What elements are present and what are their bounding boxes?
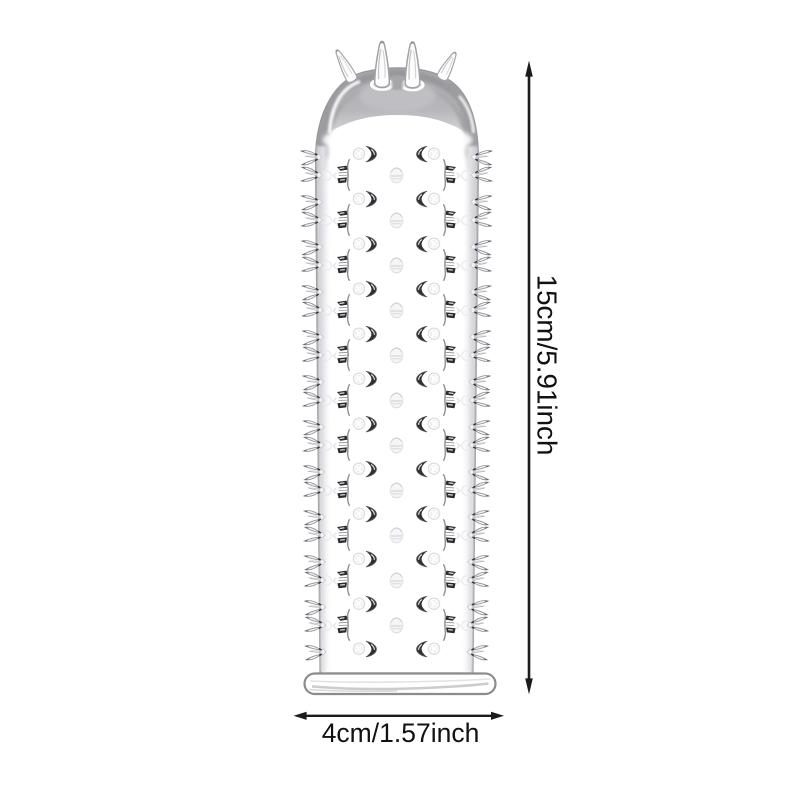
svg-text:4cm/1.57inch: 4cm/1.57inch [322, 718, 480, 748]
svg-text:15cm/5.91inch: 15cm/5.91inch [532, 275, 563, 456]
